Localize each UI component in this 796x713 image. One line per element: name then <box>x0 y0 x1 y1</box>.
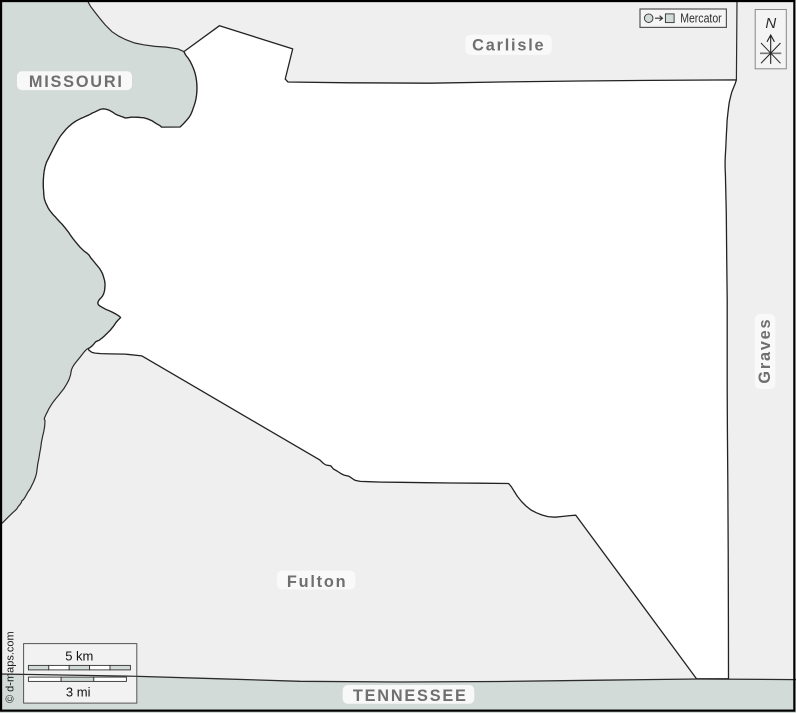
svg-text:Mercator: Mercator <box>680 11 722 26</box>
svg-text:5 km: 5 km <box>65 649 93 664</box>
svg-text:© d-maps.com: © d-maps.com <box>5 631 17 703</box>
svg-text:Fulton: Fulton <box>287 573 348 591</box>
svg-text:3 mi: 3 mi <box>66 685 91 700</box>
svg-text:MISSOURI: MISSOURI <box>29 73 124 91</box>
svg-text:Graves: Graves <box>756 318 774 384</box>
svg-text:TENNESSEE: TENNESSEE <box>353 687 468 705</box>
svg-text:N: N <box>765 15 776 32</box>
svg-text:Carlisle: Carlisle <box>472 37 545 55</box>
